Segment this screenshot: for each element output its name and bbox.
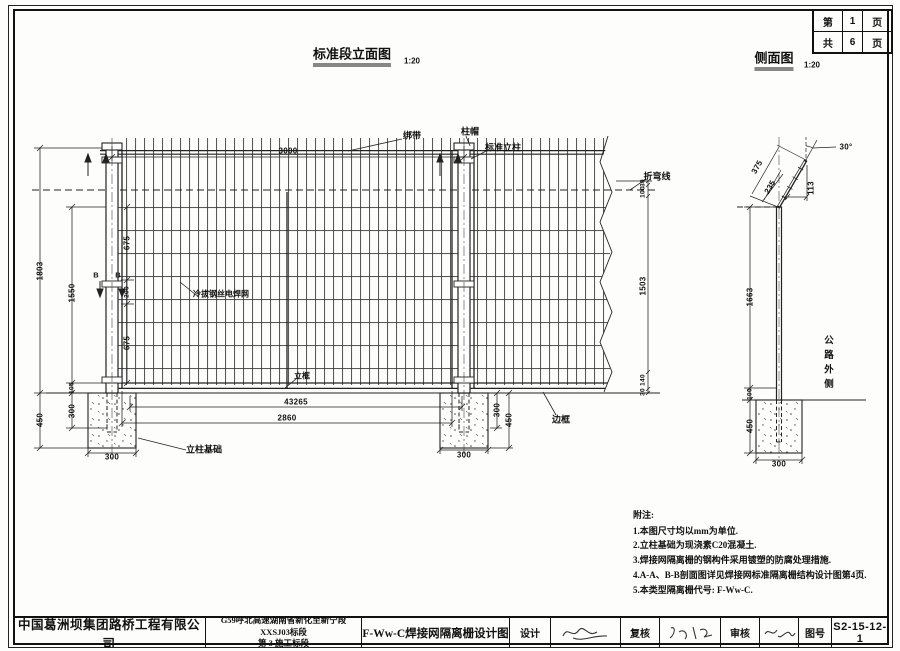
page-current: 1	[842, 11, 862, 31]
dim-side-gap-100: 100	[747, 388, 754, 400]
label-road-outside: 公路外侧	[820, 335, 834, 393]
label-bend-line: 折弯线	[643, 170, 670, 183]
dim-right-30-bottom: 30	[640, 388, 647, 396]
label-edge-frame: 边框	[552, 413, 570, 426]
dim-foundation-width-right-300: 300	[457, 451, 471, 460]
page-suffix: 页	[862, 11, 891, 31]
label-standard-post: 标准立柱	[485, 141, 521, 154]
elevation-view-title: 标准段立面图	[313, 44, 391, 67]
dim-right-embed-300: 300	[493, 403, 502, 417]
dim-seg-675-bottom: 675	[123, 336, 132, 350]
label-mesh: 冷拔钢丝电焊网	[193, 289, 249, 300]
dim-angle-30: 30°	[840, 143, 853, 152]
side-view	[737, 137, 866, 464]
label-vertical-frame: 立框	[294, 371, 310, 382]
elevation-view-scale: 1:20	[404, 57, 420, 66]
page-total: 6	[842, 32, 862, 52]
drawing-sheet: 标准段立面图 1:20 侧面图 1:20 3000 1803 450 1550 …	[0, 0, 900, 651]
dim-right-140: 140	[640, 374, 647, 386]
drawing-no-label: 图号	[798, 618, 831, 647]
review-signature	[759, 618, 798, 647]
drawing-no: S2-15-12-1	[831, 618, 888, 647]
page-row-total: 共 6 页	[814, 31, 891, 52]
dim-seg-200: 200	[124, 286, 131, 298]
project-line1: G59呼北高速湖南省新化至新宁段 XXSJ03标段	[206, 618, 361, 638]
title-block: 中国葛洲坝集团路桥工程有限公司 G59呼北高速湖南省新化至新宁段 XXSJ03标…	[13, 616, 888, 647]
total-label: 共	[814, 32, 842, 52]
note-item-1: 1.本图尺寸均以mm为单位.	[633, 526, 895, 536]
side-view-title: 侧面图	[754, 48, 793, 71]
note-item-2: 2.立柱基础为现浇素C20混凝土.	[633, 540, 895, 550]
company-name: 中国葛洲坝集团路桥工程有限公司	[13, 618, 205, 647]
notes-title: 附注:	[633, 508, 895, 521]
dim-frame-width-2860: 2860	[278, 414, 297, 423]
dim-foundation-depth-450: 450	[36, 413, 45, 427]
label-tie-band: 绑带	[403, 129, 421, 142]
project-name: G59呼北高速湖南省新化至新宁段 XXSJ03标段 第 3 施工标段	[205, 618, 361, 647]
dim-side-foundation-300: 300	[772, 460, 786, 469]
note-item-4: 4.A-A、B-B剖面图详见焊接网标准隔离栅结构设计图第4页.	[633, 570, 895, 580]
elevation-mesh	[118, 138, 610, 386]
recheck-label: 复核	[620, 618, 659, 647]
label-post-cap: 柱帽	[461, 125, 479, 138]
dim-total-height-1803: 1803	[36, 262, 45, 281]
dim-mesh-height-1550: 1550	[68, 284, 77, 303]
section-marker-b-left: B	[93, 271, 98, 280]
page-number-box: 第 1 页 共 6 页	[812, 9, 893, 54]
drawing-title: F-Ww-C焊接网隔离栅设计图	[361, 618, 509, 647]
design-signature-glyph	[555, 621, 617, 645]
dim-post-height-1663: 1663	[746, 288, 755, 307]
page-label: 第	[814, 11, 842, 31]
design-signature	[550, 618, 620, 647]
dim-span-3000: 3000	[279, 147, 298, 156]
dim-side-depth-450: 450	[746, 419, 755, 433]
review-signature-glyph	[761, 621, 797, 645]
dim-right-1503: 1503	[639, 277, 648, 296]
review-label: 审核	[720, 618, 759, 647]
dim-right-depth-450: 450	[505, 413, 514, 427]
design-label: 设计	[509, 618, 550, 647]
dim-right-100: 100	[640, 186, 647, 198]
page-row-current: 第 1 页	[814, 11, 891, 31]
notes-block: 附注: 1.本图尺寸均以mm为单位. 2.立柱基础为现浇素C20混凝土. 3.焊…	[633, 508, 895, 595]
dim-gap-100: 100	[69, 382, 76, 394]
dim-seg-675-top: 675	[123, 236, 132, 250]
note-item-5: 5.本类型隔离栅代号: F-Ww-C.	[633, 585, 895, 595]
project-line2: 第 3 施工标段	[258, 638, 309, 647]
total-suffix: 页	[862, 32, 891, 52]
dim-length-43265: 43265	[284, 398, 308, 407]
dim-embed-300: 300	[68, 404, 77, 418]
recheck-signature-glyph	[663, 621, 717, 645]
note-item-3: 3.焊接网隔离栅的钢构件采用镀塑的防腐处理措施.	[633, 555, 895, 565]
label-post-foundation: 立柱基础	[186, 443, 222, 456]
recheck-signature	[659, 618, 720, 647]
dim-offset-113: 113	[807, 181, 816, 195]
dim-foundation-width-left-300: 300	[105, 453, 119, 462]
side-view-scale: 1:20	[804, 61, 820, 70]
section-marker-b-right: B	[115, 271, 120, 280]
